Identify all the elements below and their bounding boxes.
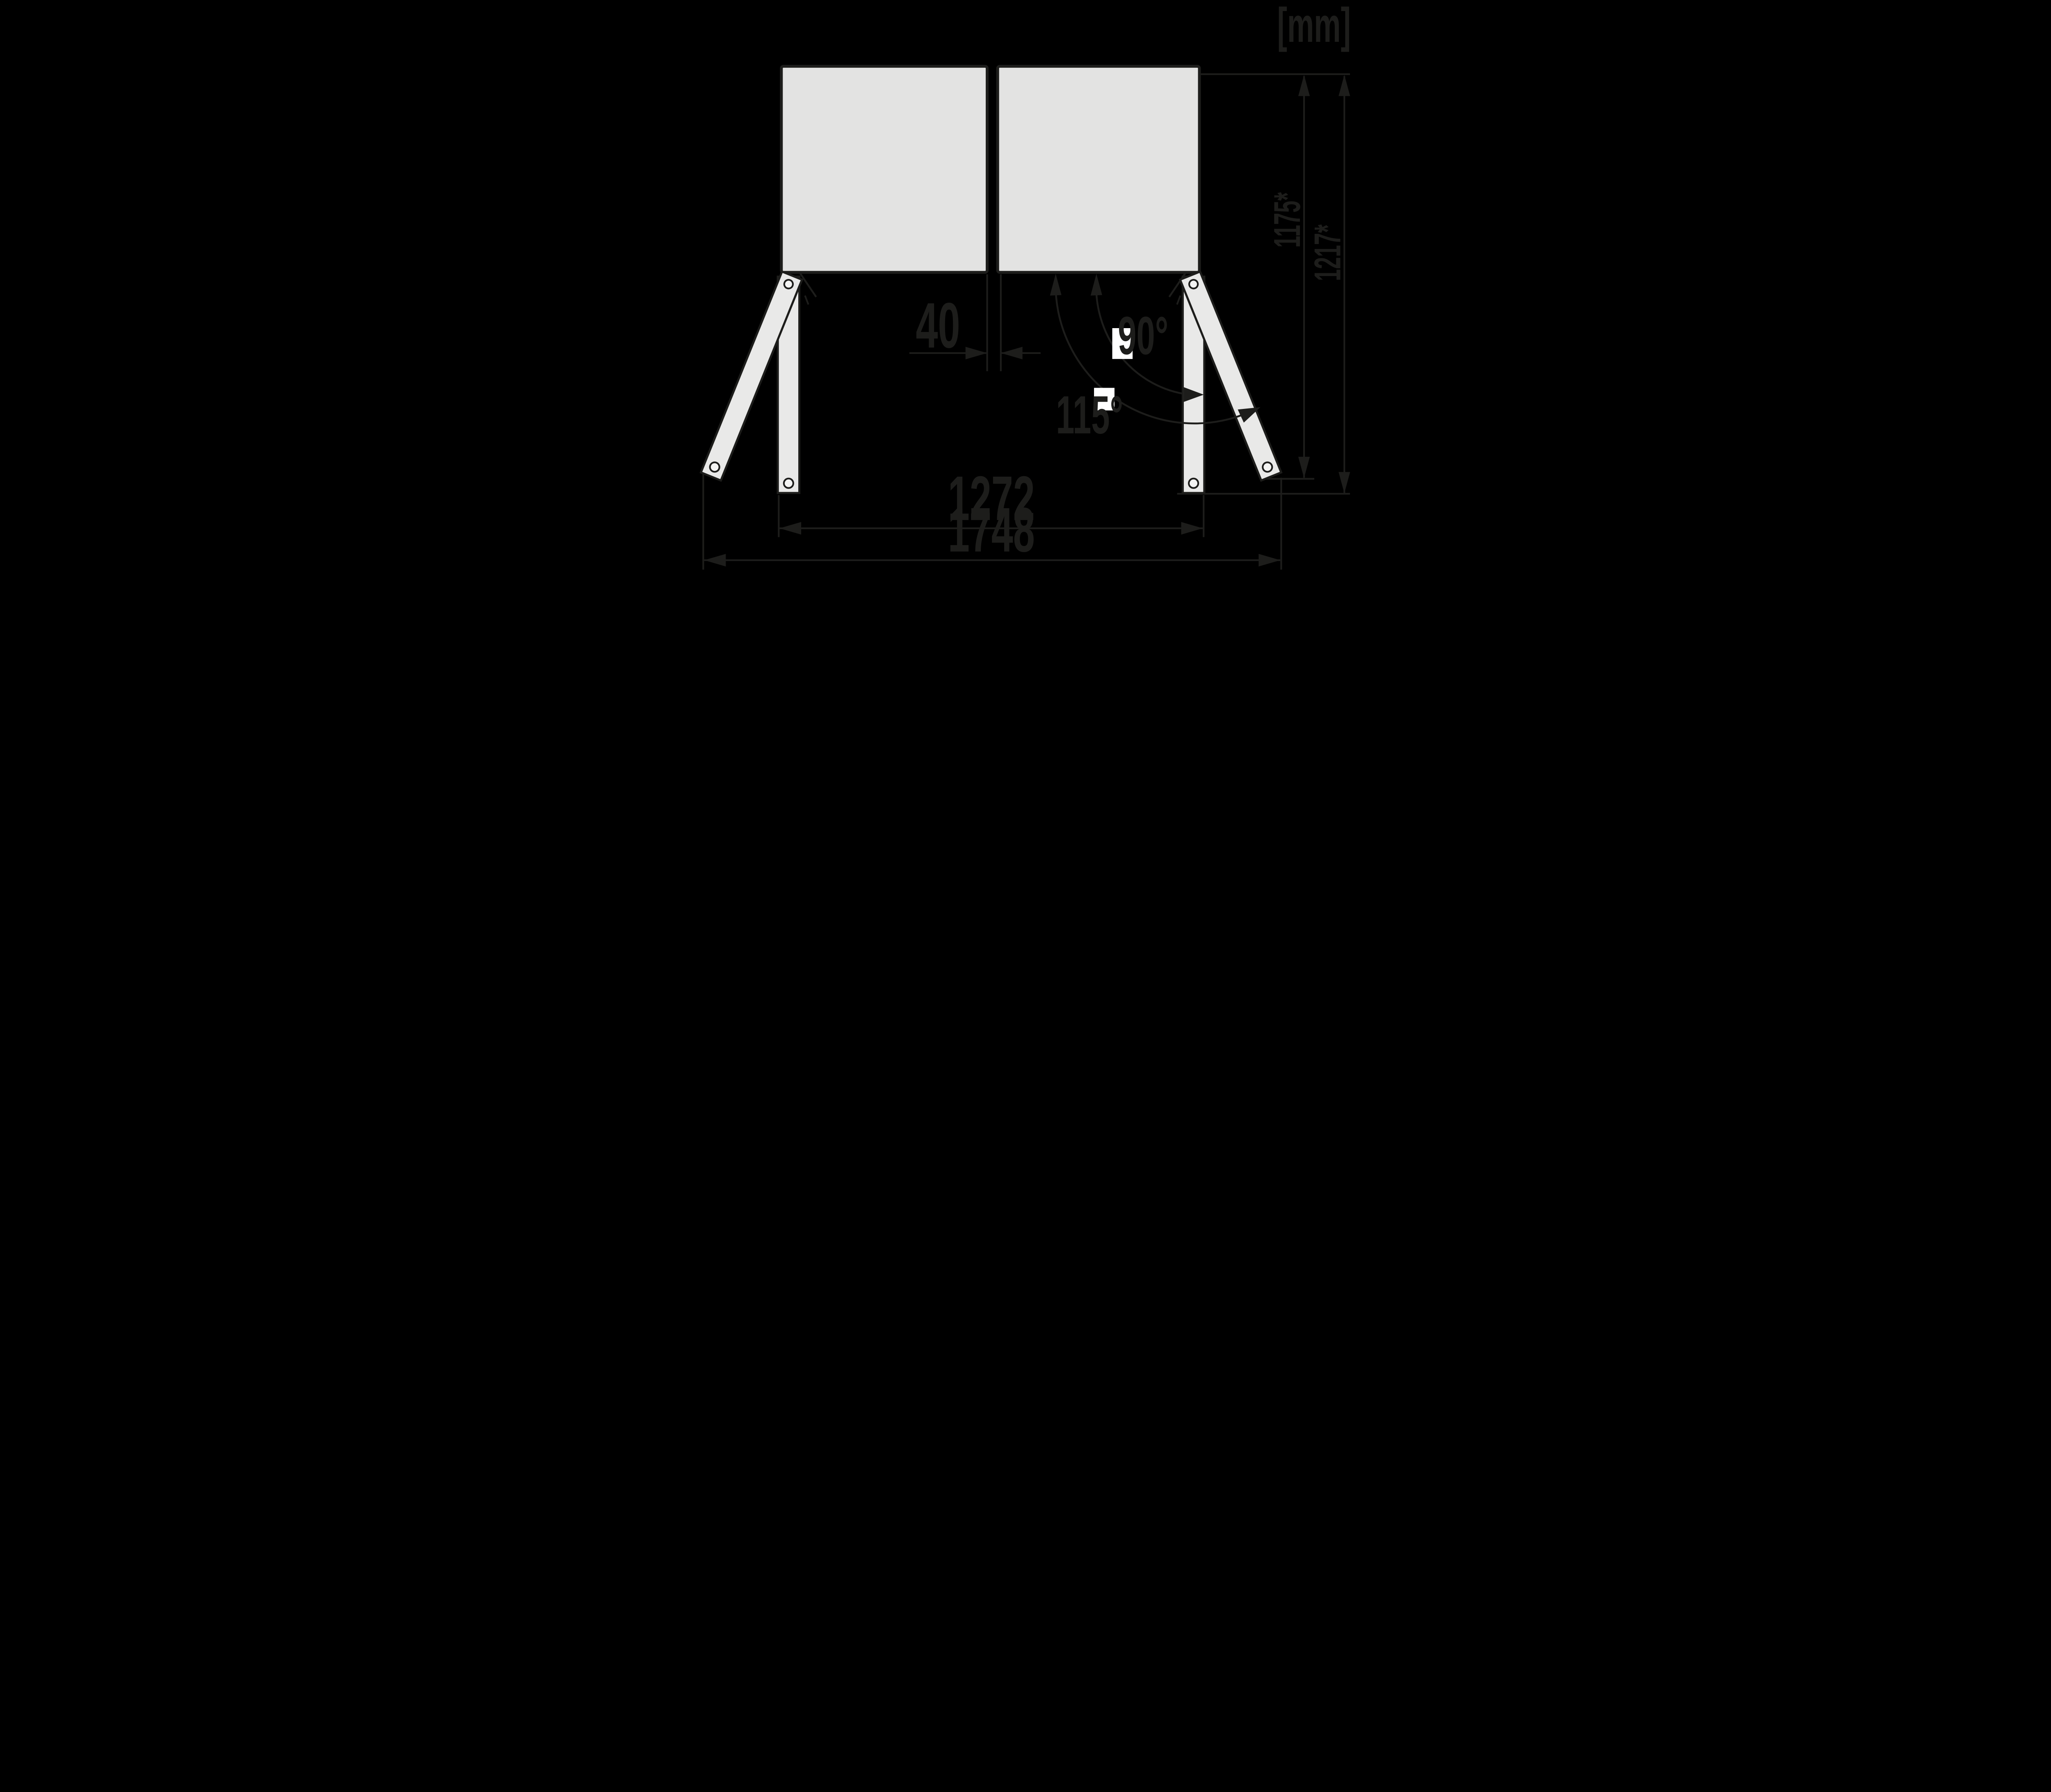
hinge-arm: [805, 296, 808, 305]
cabinet-right: [998, 66, 1199, 272]
depth-115-arrow-top-icon: [1298, 75, 1310, 96]
angle-115-label: 115°: [1056, 385, 1123, 445]
installation-diagram: [mm] 40 90° 115° 1272 1748 1175* 1217*: [697, 0, 1354, 573]
diagram-canvas: [mm] 40 90° 115° 1272 1748 1175* 1217*: [697, 0, 1354, 573]
inner-width-arrow-left-icon: [779, 522, 801, 535]
gap-value: 40: [916, 290, 960, 361]
arc-90-arrow-top-icon: [1091, 274, 1102, 296]
total-width-arrow-right-icon: [1258, 554, 1280, 566]
cabinet-left: [781, 66, 987, 272]
gap-arrow-left-icon: [966, 347, 987, 359]
depth-90-arrow-bottom-icon: [1338, 472, 1350, 493]
gap-arrow-right-icon: [1001, 347, 1023, 359]
depth-115-arrow-bottom-icon: [1298, 457, 1310, 478]
depth-90-value: 1217*: [1306, 224, 1348, 281]
total-width-arrow-left-icon: [704, 554, 726, 566]
angle-90-label: 90°: [1118, 306, 1168, 366]
inner-width-arrow-right-icon: [1181, 522, 1203, 535]
hinge-arm: [1177, 296, 1180, 305]
depth-115-value: 1175*: [1266, 192, 1308, 248]
hinge-pin-icon: [784, 479, 793, 488]
unit-label: [mm]: [1277, 0, 1351, 52]
total-width-value: 1748: [948, 495, 1035, 565]
hinge-pin-icon: [1189, 479, 1198, 488]
depth-90-arrow-top-icon: [1338, 75, 1350, 96]
hinge-arm: [800, 273, 816, 297]
hinge-bracket-left: [800, 273, 816, 304]
arc-115-arrow-top-icon: [1050, 274, 1062, 296]
